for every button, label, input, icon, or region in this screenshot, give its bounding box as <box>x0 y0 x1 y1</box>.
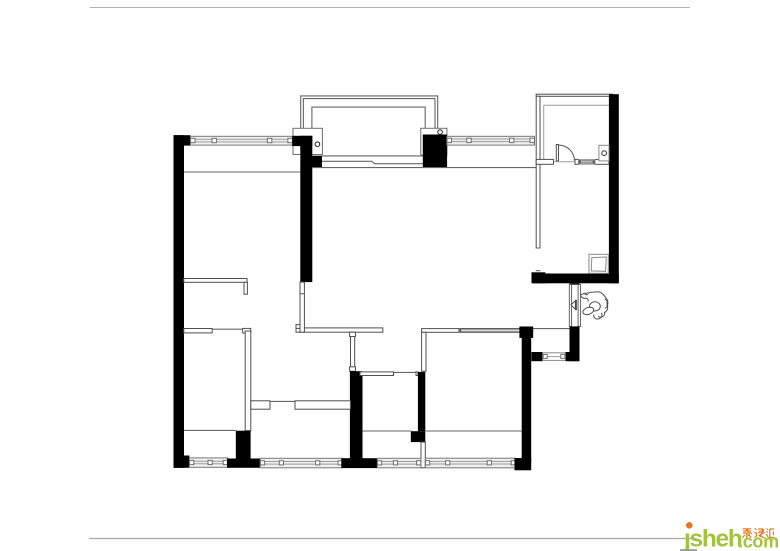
svg-text:.com: .com <box>738 532 779 551</box>
svg-text:ȷsheh: ȷsheh <box>683 526 742 551</box>
